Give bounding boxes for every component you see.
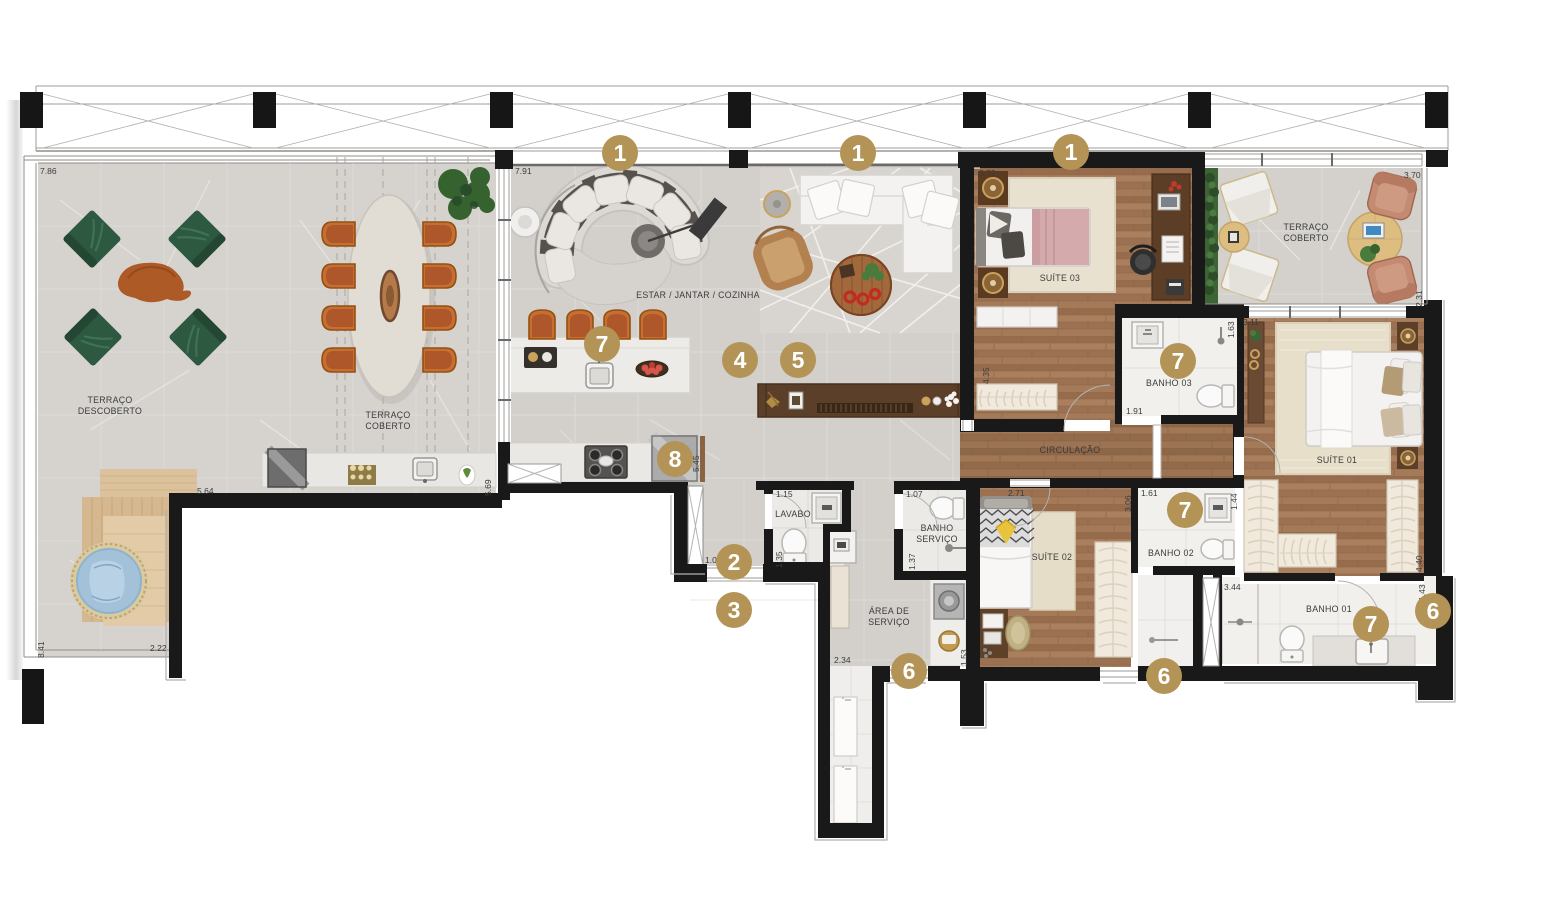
svg-text:LAVABO: LAVABO bbox=[775, 509, 811, 519]
svg-text:TERRAÇO: TERRAÇO bbox=[1283, 222, 1328, 232]
svg-text:3: 3 bbox=[728, 597, 741, 623]
svg-text:7.91: 7.91 bbox=[515, 166, 532, 176]
svg-text:3.44: 3.44 bbox=[1224, 582, 1241, 592]
svg-text:1.15: 1.15 bbox=[776, 489, 793, 499]
svg-text:2.22: 2.22 bbox=[150, 643, 167, 653]
svg-text:4: 4 bbox=[734, 347, 747, 373]
svg-text:SUÍTE 03: SUÍTE 03 bbox=[1040, 273, 1081, 283]
svg-text:ÁREA DE: ÁREA DE bbox=[869, 606, 909, 616]
svg-text:3.72: 3.72 bbox=[979, 168, 996, 178]
svg-text:7: 7 bbox=[1172, 348, 1185, 374]
svg-text:BANHO 02: BANHO 02 bbox=[1148, 548, 1194, 558]
svg-text:2.31: 2.31 bbox=[1414, 290, 1424, 307]
svg-text:2.71: 2.71 bbox=[1008, 488, 1025, 498]
svg-text:6: 6 bbox=[1158, 663, 1171, 689]
svg-text:4.40: 4.40 bbox=[1414, 555, 1424, 572]
svg-text:1.61: 1.61 bbox=[1141, 488, 1158, 498]
svg-text:SERVIÇO: SERVIÇO bbox=[868, 617, 910, 627]
svg-text:4.35: 4.35 bbox=[981, 367, 991, 384]
svg-text:3.06: 3.06 bbox=[1123, 495, 1133, 512]
svg-text:7.86: 7.86 bbox=[40, 166, 57, 176]
svg-text:COBERTO: COBERTO bbox=[365, 421, 410, 431]
svg-text:3.11: 3.11 bbox=[1243, 317, 1259, 327]
svg-text:SUÍTE 02: SUÍTE 02 bbox=[1032, 552, 1073, 562]
svg-text:1: 1 bbox=[852, 140, 865, 166]
svg-text:6: 6 bbox=[903, 658, 916, 684]
svg-text:TERRAÇO: TERRAÇO bbox=[87, 395, 132, 405]
svg-text:5: 5 bbox=[792, 347, 805, 373]
svg-text:TERRAÇO: TERRAÇO bbox=[365, 410, 410, 420]
svg-text:1.91: 1.91 bbox=[1126, 406, 1143, 416]
svg-text:7: 7 bbox=[1365, 611, 1378, 637]
svg-text:5.64: 5.64 bbox=[197, 486, 214, 496]
svg-text:BANHO: BANHO bbox=[921, 523, 954, 533]
svg-text:ESTAR / JANTAR / COZINHA: ESTAR / JANTAR / COZINHA bbox=[636, 290, 760, 300]
svg-text:8: 8 bbox=[669, 446, 682, 472]
svg-text:1.37: 1.37 bbox=[907, 553, 917, 570]
svg-text:1.44: 1.44 bbox=[1229, 493, 1239, 510]
svg-text:5.69: 5.69 bbox=[483, 479, 493, 496]
svg-text:1: 1 bbox=[1065, 139, 1078, 165]
svg-text:BANHO 01: BANHO 01 bbox=[1306, 604, 1352, 614]
svg-text:1.35: 1.35 bbox=[774, 551, 784, 568]
svg-text:1.63: 1.63 bbox=[1226, 321, 1236, 338]
svg-text:6: 6 bbox=[1427, 598, 1440, 624]
svg-text:3.70: 3.70 bbox=[1404, 170, 1421, 180]
svg-text:DESCOBERTO: DESCOBERTO bbox=[78, 406, 142, 416]
svg-text:7: 7 bbox=[1179, 497, 1192, 523]
svg-text:CIRCULAÇÃO: CIRCULAÇÃO bbox=[1040, 445, 1101, 455]
svg-text:2.34: 2.34 bbox=[834, 655, 851, 665]
svg-text:1: 1 bbox=[614, 140, 627, 166]
svg-text:1.07: 1.07 bbox=[906, 489, 923, 499]
svg-text:2: 2 bbox=[728, 549, 741, 575]
svg-text:BANHO 03: BANHO 03 bbox=[1146, 378, 1192, 388]
svg-text:1.53: 1.53 bbox=[959, 649, 969, 666]
svg-text:COBERTO: COBERTO bbox=[1283, 233, 1328, 243]
svg-text:7: 7 bbox=[596, 331, 609, 357]
svg-text:8.41: 8.41 bbox=[36, 641, 46, 658]
svg-text:SUÍTE 01: SUÍTE 01 bbox=[1317, 455, 1358, 465]
svg-text:SERVIÇO: SERVIÇO bbox=[916, 534, 958, 544]
